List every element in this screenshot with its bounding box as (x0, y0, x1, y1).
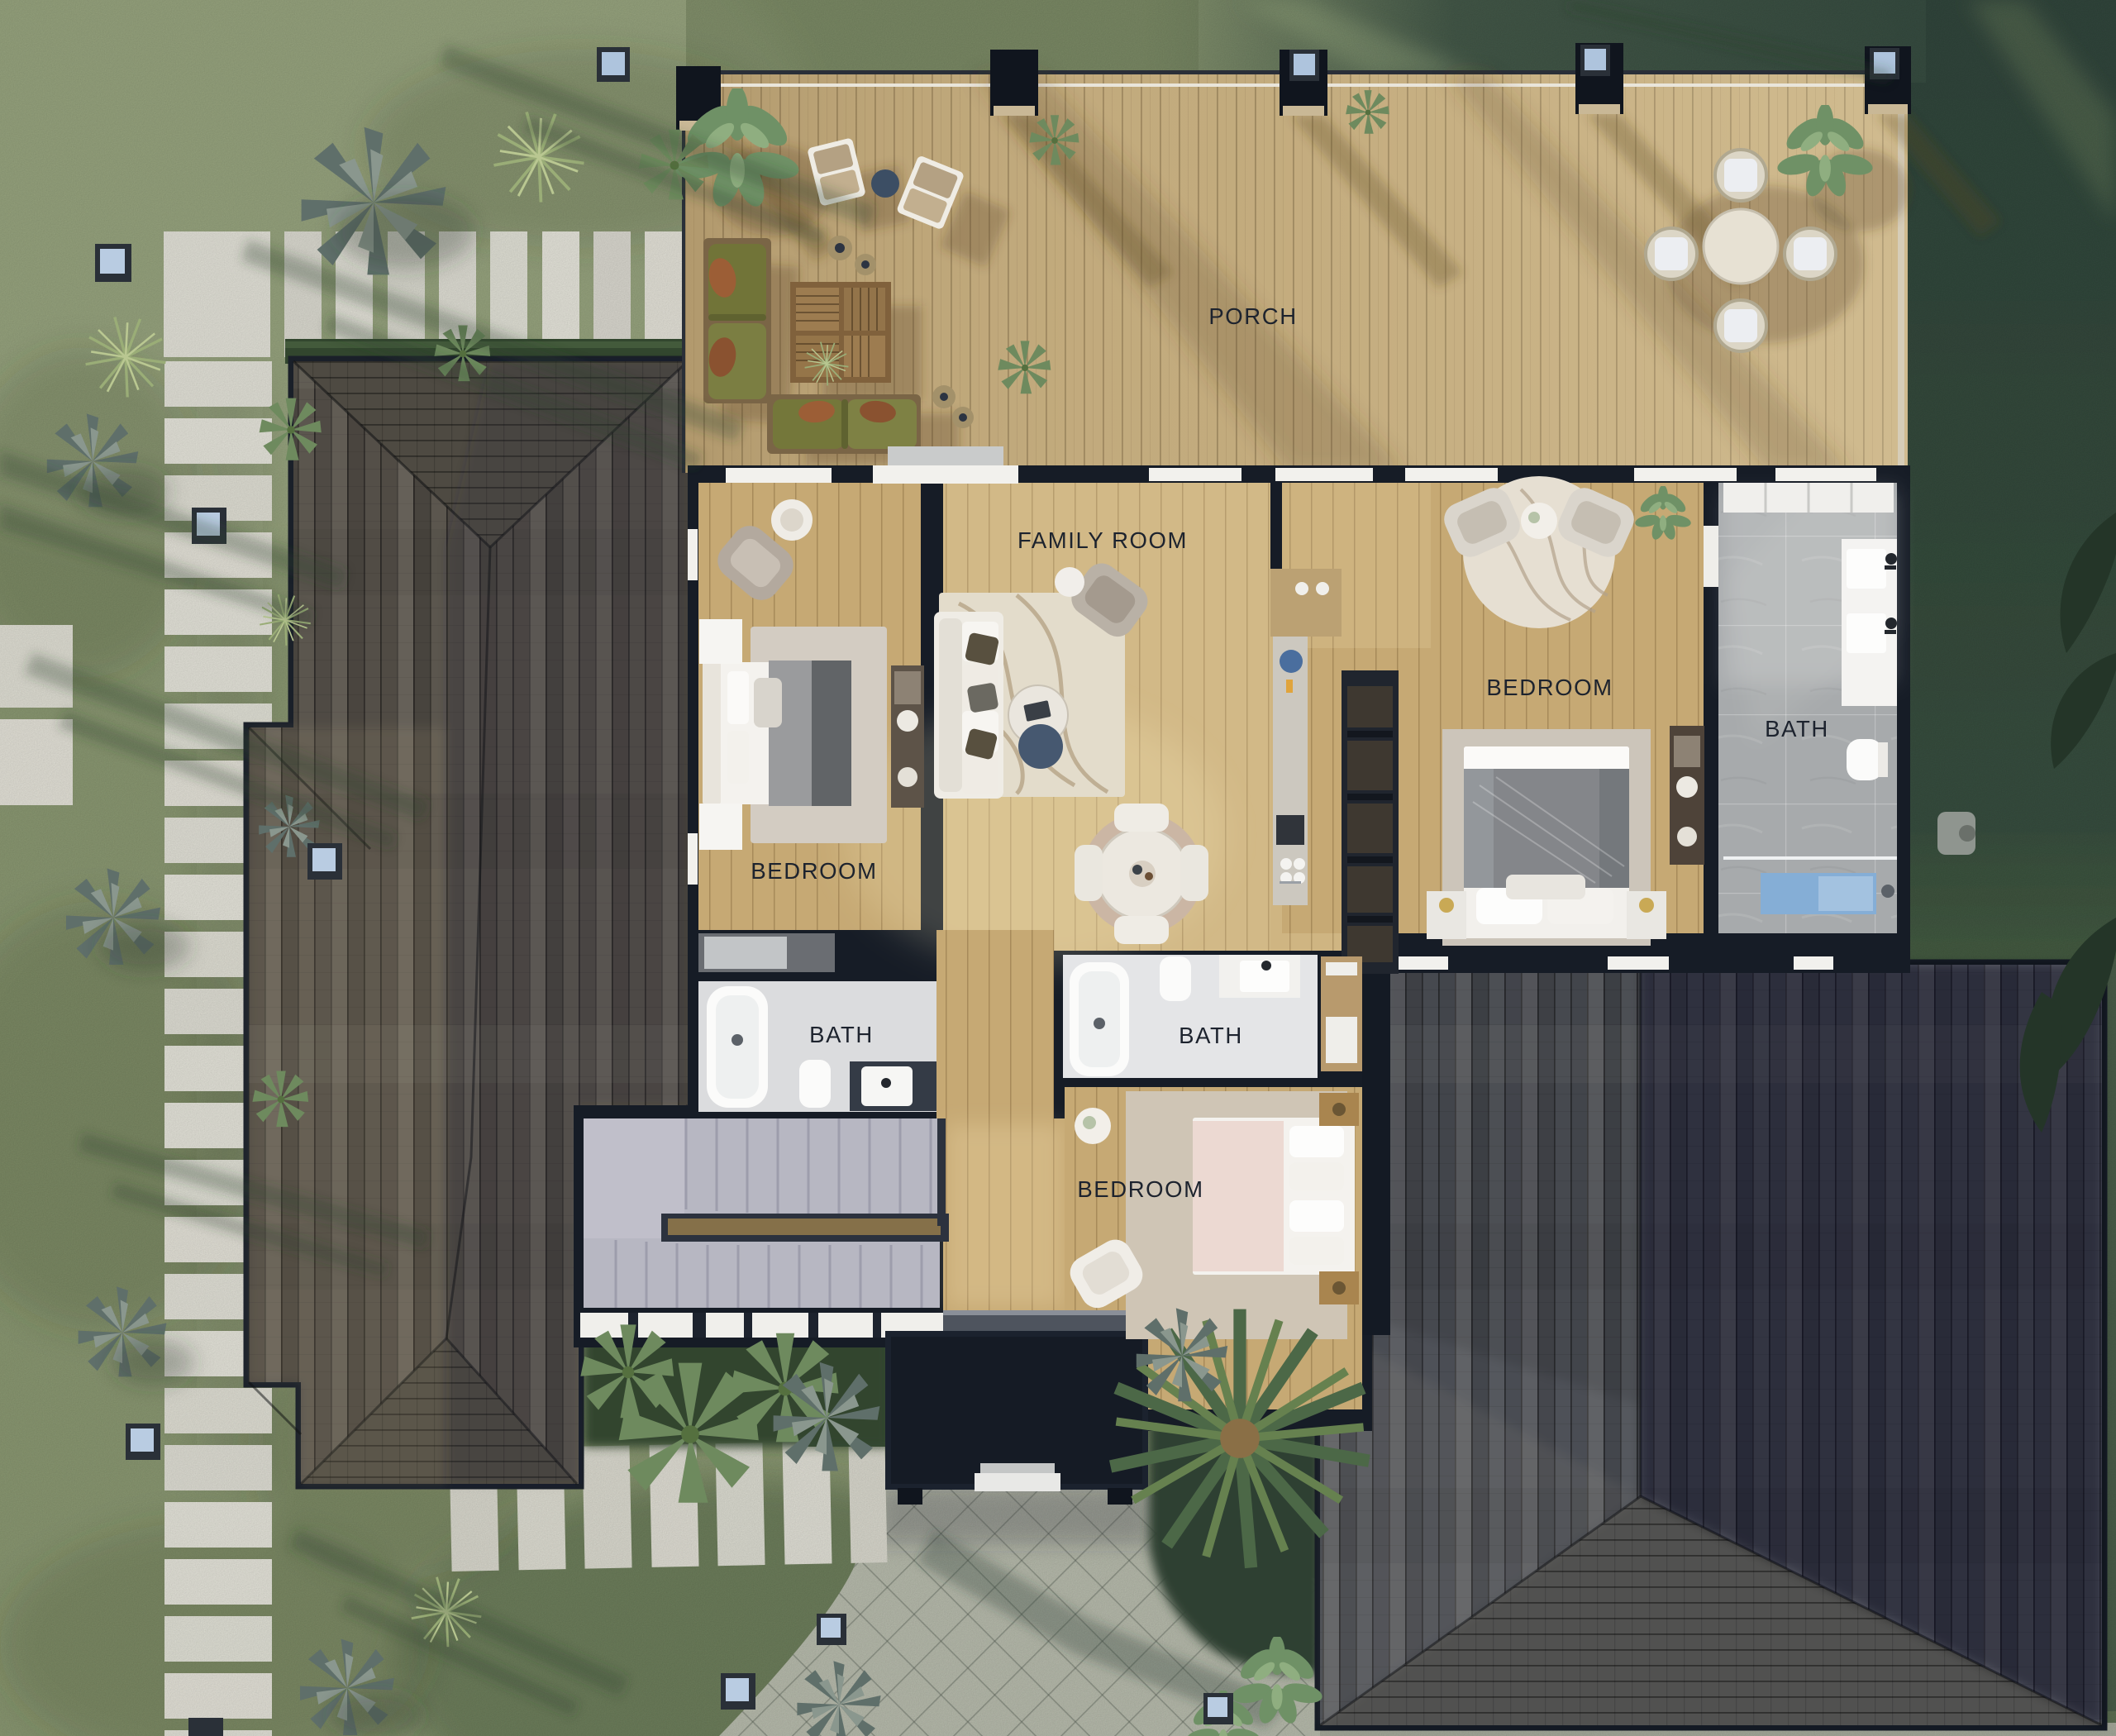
svg-text:BEDROOM: BEDROOM (1077, 1176, 1203, 1202)
svg-text:PORCH: PORCH (1208, 303, 1297, 329)
svg-text:BATH: BATH (1179, 1023, 1243, 1048)
svg-text:BATH: BATH (809, 1022, 874, 1047)
svg-text:BATH: BATH (1765, 716, 1829, 742)
svg-text:BEDROOM: BEDROOM (1486, 675, 1613, 700)
svg-text:FAMILY ROOM: FAMILY ROOM (1017, 527, 1188, 553)
svg-text:BEDROOM: BEDROOM (751, 858, 877, 884)
